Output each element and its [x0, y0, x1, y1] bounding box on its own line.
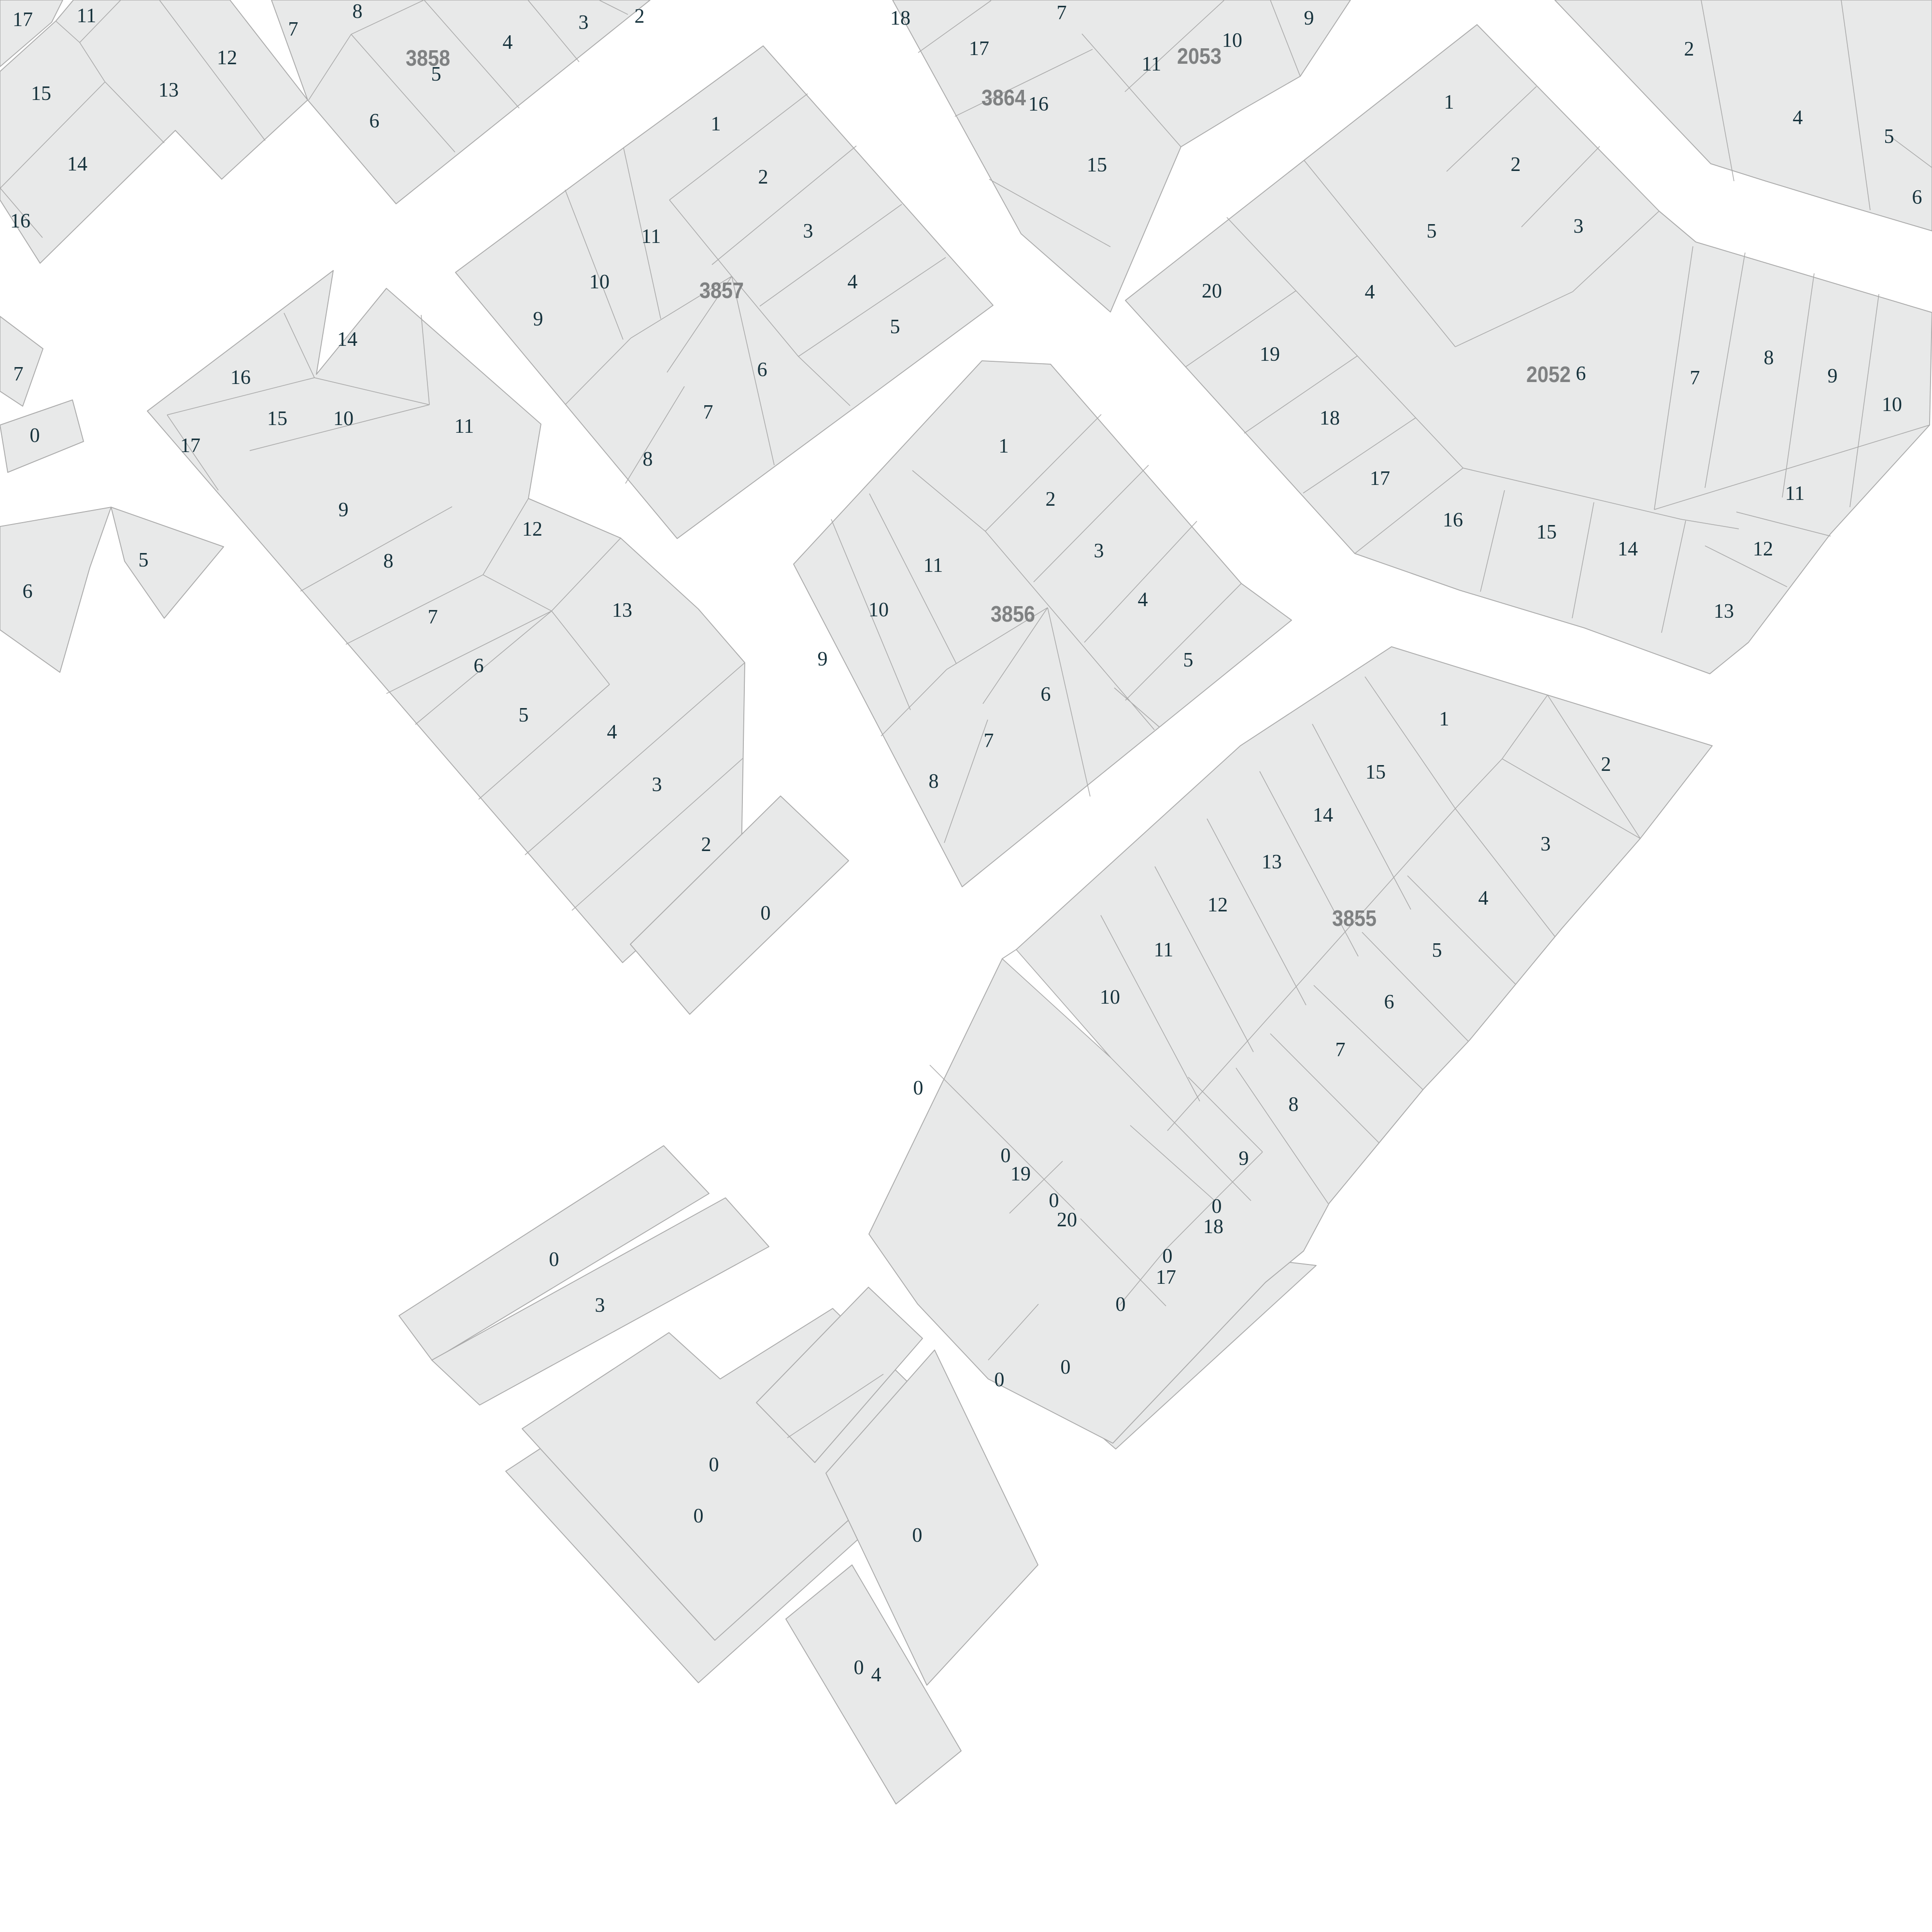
svg-text:7: 7 [428, 606, 438, 628]
svg-text:9: 9 [339, 499, 349, 521]
svg-text:0: 0 [30, 425, 40, 447]
svg-text:0: 0 [913, 1077, 923, 1099]
svg-text:0: 0 [694, 1505, 704, 1527]
svg-text:12: 12 [217, 47, 237, 69]
svg-text:5: 5 [1884, 126, 1894, 148]
svg-text:5: 5 [1432, 939, 1442, 962]
svg-text:3: 3 [1541, 833, 1551, 855]
svg-text:2: 2 [1684, 38, 1694, 60]
svg-text:10: 10 [1882, 394, 1902, 416]
svg-text:7: 7 [1690, 367, 1700, 389]
svg-text:0: 0 [994, 1369, 1005, 1391]
svg-text:3858: 3858 [406, 45, 450, 71]
svg-text:1: 1 [999, 435, 1009, 457]
svg-text:0: 0 [761, 902, 771, 924]
svg-text:9: 9 [1239, 1148, 1249, 1170]
svg-text:19: 19 [1010, 1163, 1031, 1185]
svg-text:9: 9 [533, 308, 543, 330]
svg-text:14: 14 [337, 328, 357, 351]
svg-text:12: 12 [1753, 538, 1773, 560]
svg-text:4: 4 [848, 271, 858, 293]
svg-text:7: 7 [288, 18, 298, 41]
svg-text:6: 6 [474, 655, 484, 677]
svg-text:7: 7 [984, 730, 994, 752]
svg-text:13: 13 [158, 79, 179, 101]
svg-text:11: 11 [641, 226, 661, 248]
svg-text:20: 20 [1057, 1209, 1077, 1231]
svg-text:0: 0 [1001, 1145, 1011, 1167]
svg-text:16: 16 [10, 210, 30, 232]
svg-text:10: 10 [1100, 986, 1120, 1009]
svg-text:1: 1 [711, 113, 721, 135]
svg-text:2: 2 [1511, 154, 1521, 176]
svg-text:16: 16 [1028, 93, 1049, 115]
svg-text:6: 6 [369, 110, 380, 132]
svg-text:5: 5 [1183, 649, 1193, 671]
svg-text:15: 15 [1536, 521, 1557, 543]
svg-text:0: 0 [1116, 1293, 1126, 1316]
svg-text:0: 0 [1163, 1245, 1173, 1267]
svg-text:3: 3 [1574, 215, 1584, 238]
svg-text:11: 11 [1154, 939, 1173, 961]
svg-text:6: 6 [23, 581, 33, 603]
svg-text:4: 4 [607, 721, 617, 743]
svg-text:9: 9 [1828, 365, 1838, 387]
svg-text:5: 5 [890, 316, 900, 338]
svg-text:12: 12 [1207, 894, 1228, 916]
svg-text:11: 11 [1142, 53, 1161, 75]
svg-text:4: 4 [1478, 887, 1489, 909]
svg-text:3: 3 [1094, 540, 1104, 562]
svg-text:3: 3 [652, 774, 662, 796]
svg-text:2053: 2053 [1177, 43, 1222, 69]
svg-text:2: 2 [1601, 753, 1611, 776]
svg-text:4: 4 [871, 1664, 881, 1686]
svg-text:8: 8 [929, 770, 939, 793]
svg-text:0: 0 [912, 1524, 923, 1547]
svg-text:13: 13 [612, 599, 632, 622]
svg-text:7: 7 [1335, 1039, 1346, 1061]
svg-text:0: 0 [1061, 1356, 1071, 1378]
svg-text:8: 8 [1289, 1094, 1299, 1116]
svg-text:5: 5 [1427, 220, 1437, 242]
svg-text:4: 4 [503, 31, 513, 54]
svg-text:6: 6 [1912, 186, 1922, 209]
svg-text:17: 17 [1156, 1266, 1176, 1289]
svg-text:11: 11 [1785, 483, 1804, 505]
svg-text:0: 0 [549, 1249, 559, 1271]
svg-text:2: 2 [758, 166, 768, 188]
svg-text:8: 8 [384, 550, 394, 572]
svg-text:17: 17 [180, 435, 200, 457]
svg-text:3856: 3856 [991, 601, 1035, 626]
svg-text:18: 18 [1203, 1216, 1223, 1238]
svg-text:4: 4 [1793, 107, 1803, 129]
svg-text:11: 11 [455, 415, 474, 438]
svg-text:13: 13 [1714, 600, 1734, 623]
svg-text:11: 11 [77, 5, 96, 27]
svg-text:7: 7 [14, 363, 24, 385]
svg-text:4: 4 [1365, 281, 1375, 303]
svg-text:1: 1 [1439, 708, 1449, 730]
svg-text:6: 6 [1384, 991, 1394, 1013]
svg-text:17: 17 [969, 38, 989, 60]
svg-text:9: 9 [818, 648, 828, 670]
svg-text:3857: 3857 [699, 278, 744, 303]
svg-text:14: 14 [67, 153, 87, 175]
svg-text:4: 4 [1138, 589, 1148, 611]
svg-text:15: 15 [31, 83, 51, 105]
svg-text:6: 6 [1576, 363, 1586, 385]
svg-text:3: 3 [579, 12, 589, 34]
svg-text:10: 10 [1222, 29, 1242, 52]
svg-text:17: 17 [13, 9, 33, 31]
svg-text:18: 18 [1320, 407, 1340, 429]
svg-text:3864: 3864 [981, 85, 1026, 110]
svg-text:3: 3 [595, 1294, 605, 1317]
svg-text:15: 15 [1365, 761, 1386, 783]
svg-text:17: 17 [1370, 468, 1390, 490]
svg-text:1: 1 [1444, 91, 1454, 114]
svg-text:14: 14 [1618, 538, 1638, 560]
svg-text:16: 16 [230, 367, 251, 389]
svg-text:6: 6 [1041, 683, 1051, 706]
svg-text:3855: 3855 [1332, 906, 1377, 931]
svg-text:0: 0 [709, 1454, 719, 1476]
svg-text:0: 0 [854, 1657, 864, 1679]
svg-text:2052: 2052 [1526, 362, 1571, 387]
svg-text:18: 18 [890, 7, 910, 29]
svg-text:0: 0 [1212, 1195, 1222, 1218]
svg-text:6: 6 [757, 359, 767, 381]
svg-text:16: 16 [1443, 509, 1463, 531]
svg-text:7: 7 [703, 401, 713, 424]
svg-text:5: 5 [519, 704, 529, 726]
svg-text:15: 15 [267, 408, 287, 430]
svg-text:8: 8 [643, 448, 653, 470]
svg-text:12: 12 [522, 518, 542, 540]
svg-text:10: 10 [333, 408, 354, 430]
svg-text:7: 7 [1057, 2, 1067, 24]
svg-text:2: 2 [701, 834, 711, 856]
svg-text:8: 8 [353, 0, 363, 23]
svg-text:14: 14 [1313, 804, 1333, 826]
svg-text:10: 10 [868, 599, 889, 621]
svg-text:19: 19 [1260, 343, 1280, 366]
svg-text:8: 8 [1764, 347, 1774, 369]
svg-text:3: 3 [803, 220, 813, 242]
svg-text:11: 11 [923, 554, 943, 577]
svg-text:5: 5 [139, 549, 149, 571]
svg-text:9: 9 [1304, 7, 1314, 29]
svg-text:10: 10 [589, 271, 610, 293]
svg-text:20: 20 [1202, 280, 1222, 302]
svg-text:2: 2 [635, 5, 645, 28]
svg-text:13: 13 [1262, 851, 1282, 873]
svg-text:2: 2 [1046, 488, 1056, 511]
svg-text:15: 15 [1087, 154, 1107, 176]
